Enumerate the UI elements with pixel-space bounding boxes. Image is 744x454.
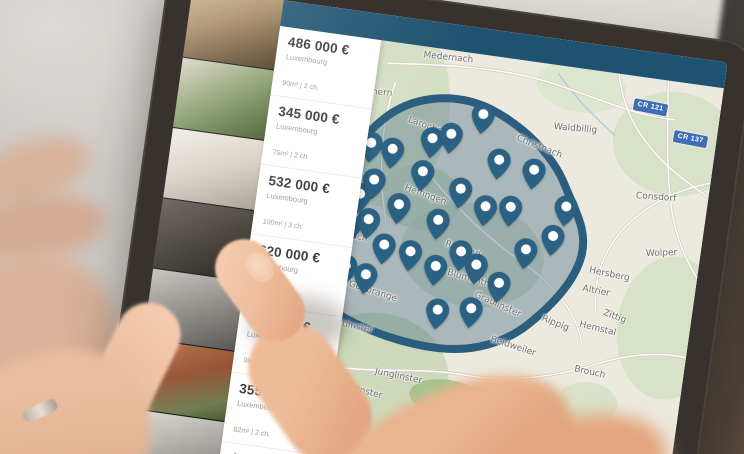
property-map-pin[interactable] xyxy=(497,194,524,228)
property-map-pin[interactable] xyxy=(352,262,379,296)
property-map-pin[interactable] xyxy=(512,237,539,271)
property-map-pin[interactable] xyxy=(485,270,512,304)
property-map-pin[interactable] xyxy=(539,223,566,257)
tablet-device: 486 000 € Luxembourg 90m² | 2 ch. 345 00… xyxy=(98,0,744,454)
property-map-pin[interactable] xyxy=(424,207,451,241)
photo-scene: 486 000 € Luxembourg 90m² | 2 ch. 345 00… xyxy=(0,0,744,454)
property-map-pin[interactable] xyxy=(409,159,436,193)
property-map-pin[interactable] xyxy=(485,147,512,181)
property-map-pin[interactable] xyxy=(424,297,451,331)
listing-details: 100m² | 3 ch. xyxy=(262,218,303,231)
property-map-pin[interactable] xyxy=(471,194,498,228)
property-map-pin[interactable] xyxy=(552,194,579,228)
listing-details: 90m² | 2 ch. xyxy=(282,80,319,92)
listing-photo[interactable] xyxy=(173,58,274,141)
property-map-pin[interactable] xyxy=(469,102,496,136)
property-map-pin[interactable] xyxy=(378,136,405,170)
property-map-pin[interactable] xyxy=(396,239,423,273)
listing-photo[interactable] xyxy=(163,128,264,211)
listing-details: 75m² | 2 ch. xyxy=(272,149,309,161)
property-map-pin[interactable] xyxy=(447,176,474,210)
listing-details: 82m² | 2 ch. xyxy=(233,426,270,438)
property-map-pin[interactable] xyxy=(422,253,449,287)
property-map-pin[interactable] xyxy=(462,252,489,286)
property-map-pin[interactable] xyxy=(457,296,484,330)
property-map-pin[interactable] xyxy=(437,121,464,155)
tablet-screen: 486 000 € Luxembourg 90m² | 2 ch. 345 00… xyxy=(127,0,727,454)
property-map-pin[interactable] xyxy=(360,167,387,201)
property-map-pin[interactable] xyxy=(520,157,547,191)
map-place-label: Wolper xyxy=(646,248,678,259)
property-map-pin[interactable] xyxy=(370,232,397,266)
property-map-pin[interactable] xyxy=(385,192,412,226)
